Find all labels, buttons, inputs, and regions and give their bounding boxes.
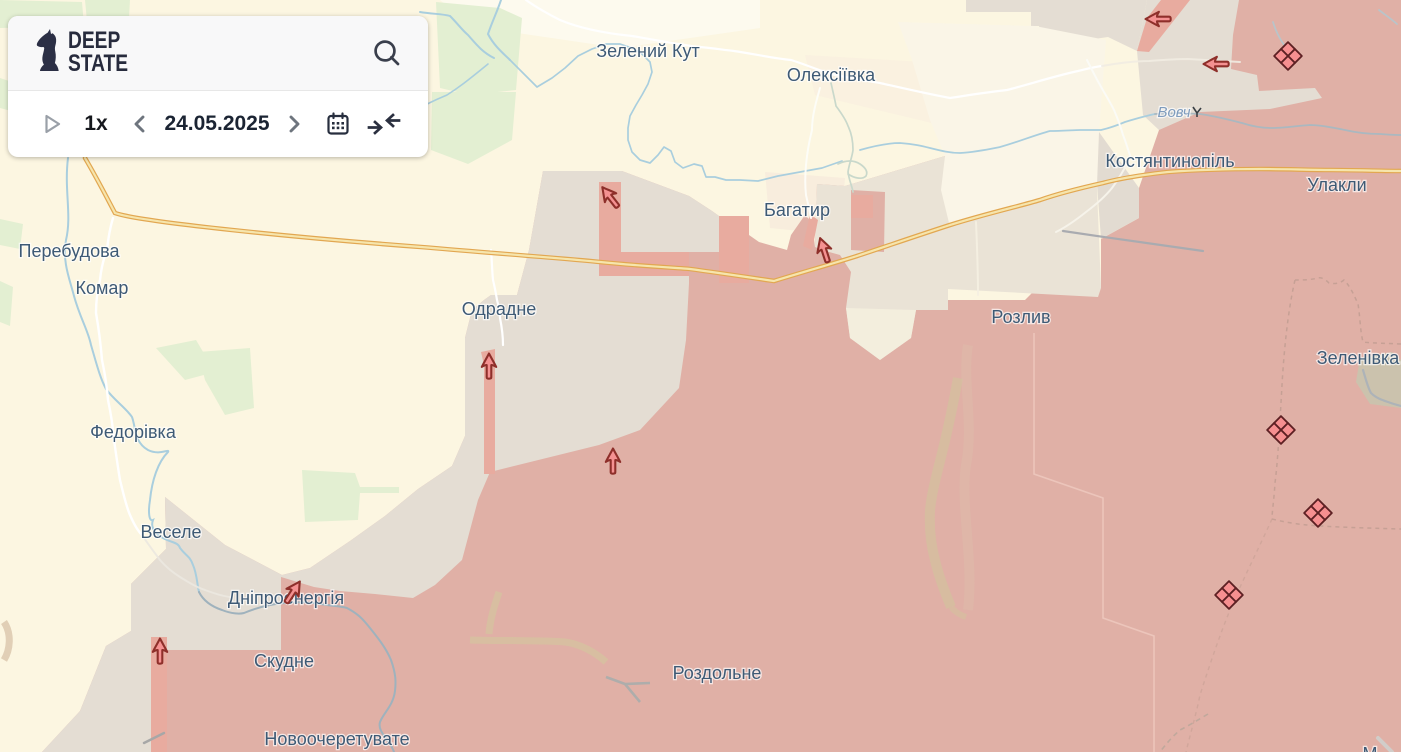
svg-text:Комар: Комар [76,278,129,298]
svg-text:Скудне: Скудне [254,651,314,671]
svg-text:Веселе: Веселе [141,522,202,542]
svg-text:Зелений Кут: Зелений Кут [596,41,700,61]
svg-text:Новоочеретувате: Новоочеретувате [264,729,409,749]
svg-text:Улакли: Улакли [1307,175,1366,195]
svg-text:Костянтинопіль: Костянтинопіль [1105,151,1234,171]
svg-text:Одрадне: Одрадне [462,299,537,319]
svg-text:Багатир: Багатир [764,200,830,220]
svg-text:Федорівка: Федорівка [90,422,177,442]
svg-text:Роздольне: Роздольне [673,663,762,683]
svg-text:Олексіївка: Олексіївка [787,65,876,85]
svg-text:Вовч: Вовч [1157,104,1190,121]
svg-text:Розлив: Розлив [991,307,1050,327]
svg-text:Зеленівка: Зеленівка [1317,348,1401,368]
svg-text:М: М [1363,744,1378,752]
svg-text:Перебудова: Перебудова [19,241,121,261]
